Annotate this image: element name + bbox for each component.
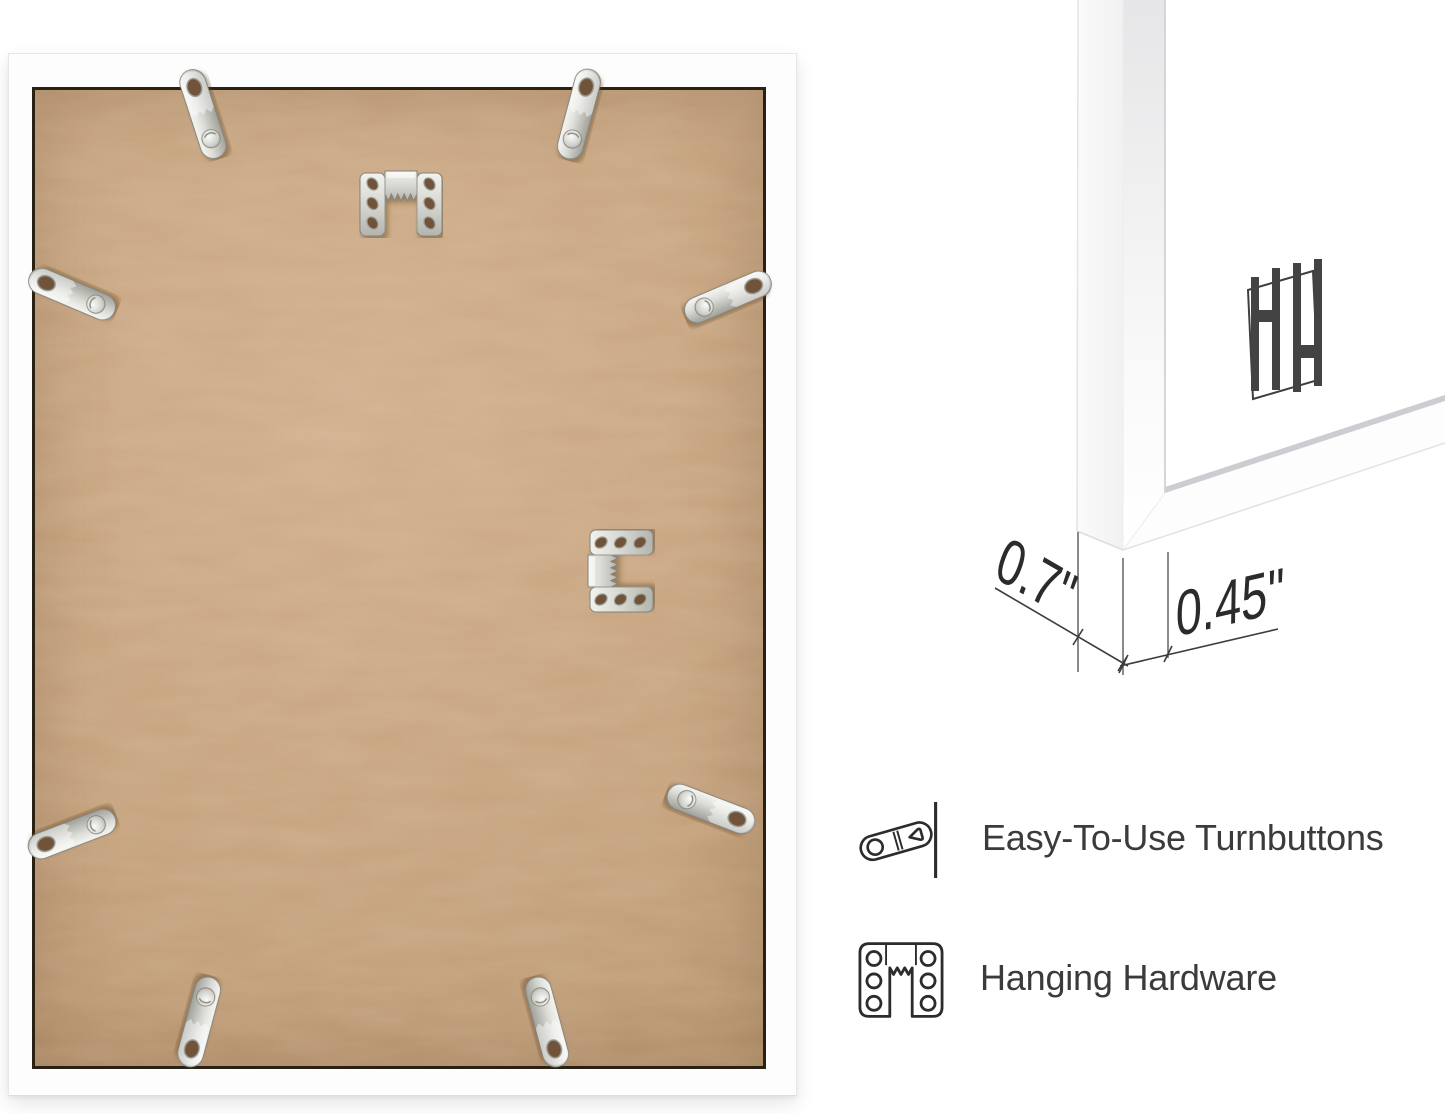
sawtooth-hanger-top: [359, 170, 443, 238]
hanging-hardware-icon: [856, 938, 946, 1022]
sawtooth-hanger-side: [587, 529, 655, 613]
brand-logo: [1248, 259, 1322, 399]
product-infographic: 0.7" 0.45" Easy-To-Use Turnbuttons Hangi…: [0, 0, 1445, 1114]
frame-back-photo: [8, 53, 797, 1096]
turnbutton-icon: [856, 799, 948, 881]
frame-left-rail-face: [1123, 0, 1165, 550]
feature-label-turnbuttons: Easy-To-Use Turnbuttons: [982, 817, 1384, 859]
feature-label-hanging-hardware: Hanging Hardware: [980, 957, 1277, 999]
frame-side-face: [1077, 0, 1123, 550]
